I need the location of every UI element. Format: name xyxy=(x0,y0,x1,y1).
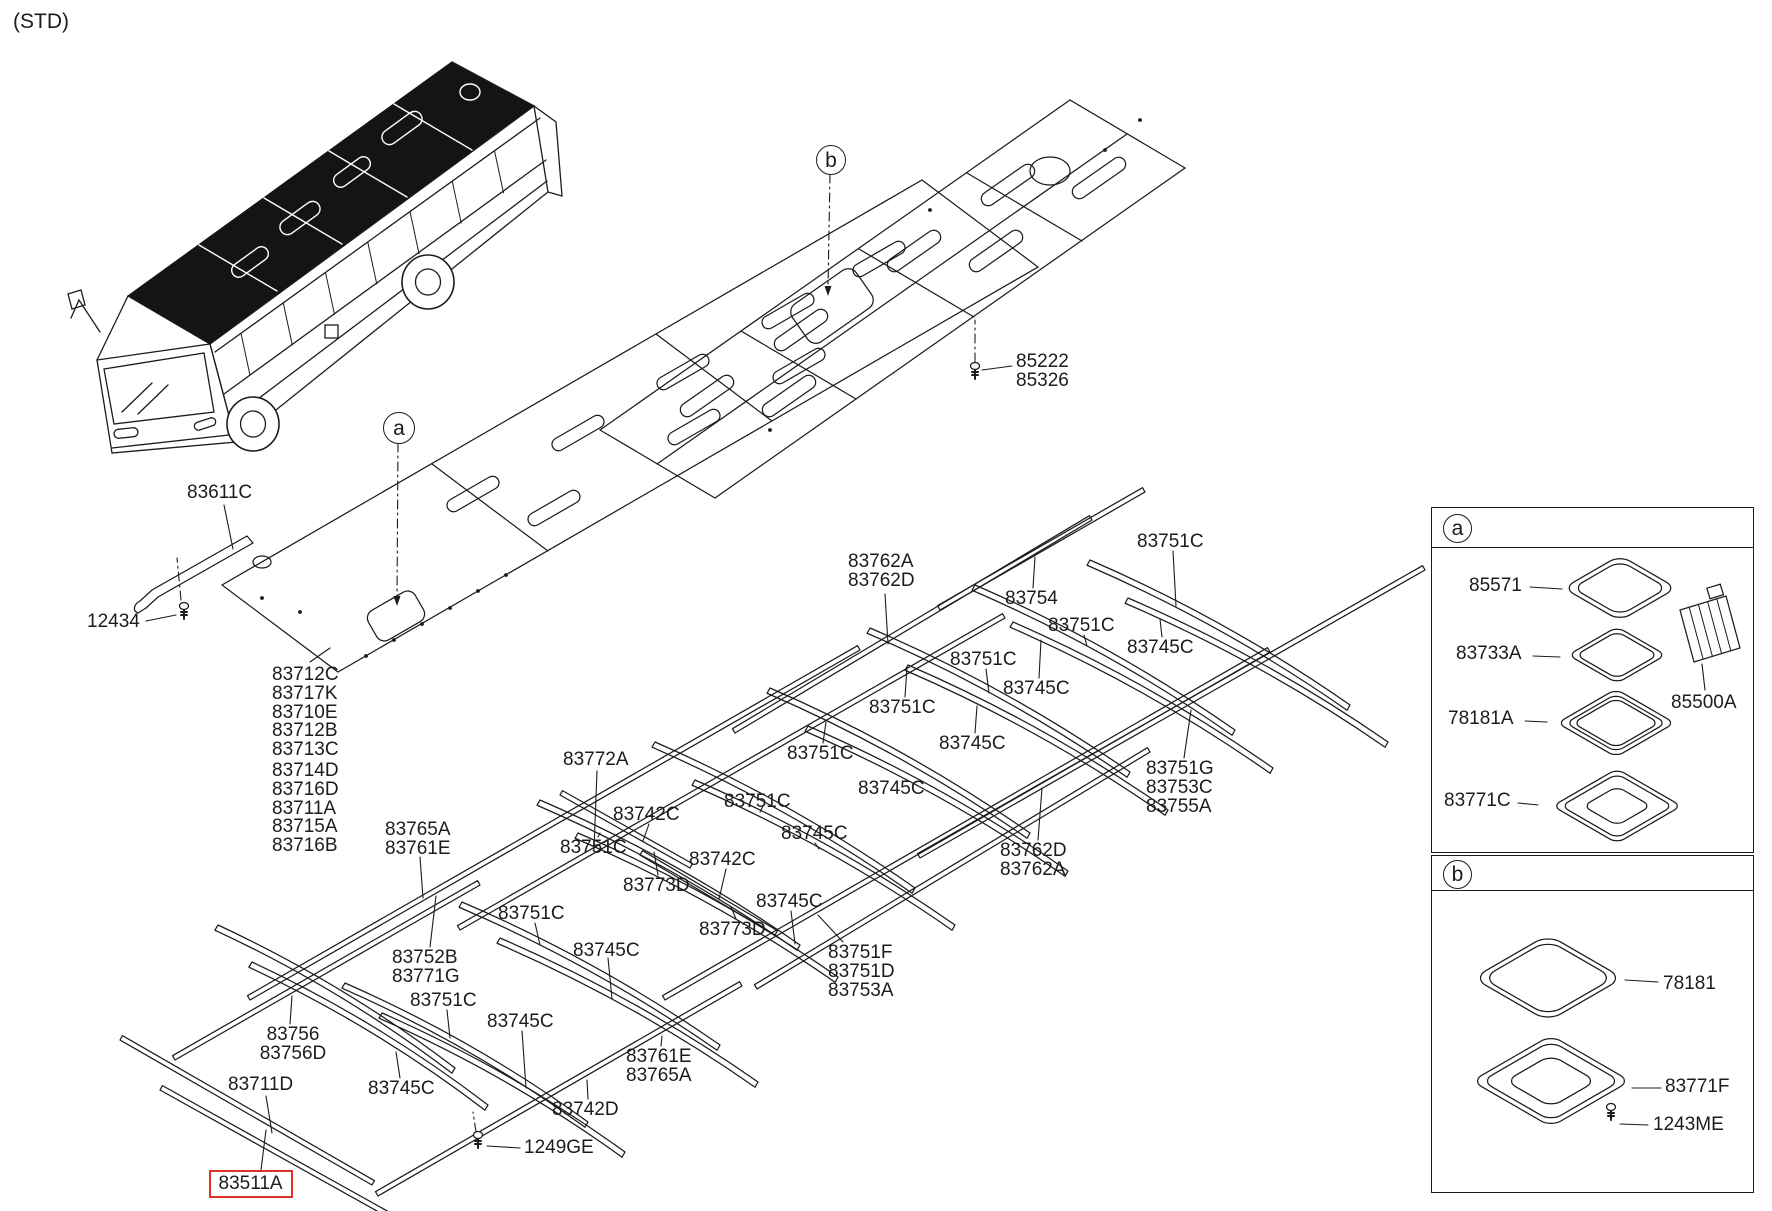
part-label-83745C-9: 83745C xyxy=(858,780,925,799)
part-label-83756-83756D: 83756 83756D xyxy=(256,1026,330,1064)
part-label-83745C-3: 83745C xyxy=(573,942,640,961)
bolt-icon xyxy=(180,603,189,620)
part-label-12434: 12434 xyxy=(87,613,140,632)
part-label-83751C-7: 83751C xyxy=(1048,617,1115,636)
inset-b-parts xyxy=(1472,935,1630,1127)
part-label-83765A-83761E: 83765A 83761E xyxy=(385,821,451,859)
part-label-83762A-83762D: 83762A 83762D xyxy=(848,553,915,591)
part-label-83751F-group: 83751F 83751D 83753A xyxy=(828,944,895,1000)
part-label-83752B-83771G: 83752B 83771G xyxy=(392,949,460,987)
part-label-1249GE: 1249GE xyxy=(524,1139,594,1158)
part-label-83773D-2: 83773D xyxy=(699,921,766,940)
roof-panel-sheet-front xyxy=(222,180,1038,672)
part-label-panel-list-1: 83712C 83717K 83710E 83712B 83713C xyxy=(272,666,339,760)
callout-b-main: b xyxy=(816,145,846,175)
part-label-85222-85326: 85222 85326 xyxy=(1016,353,1069,391)
part-label-83751C-5: 83751C xyxy=(787,745,854,764)
callout-arrows xyxy=(394,286,832,606)
part-label-83762D-83762A: 83762D 83762A xyxy=(1000,842,1067,880)
part-label-1243ME: 1243ME xyxy=(1653,1116,1724,1135)
bolt-icon xyxy=(971,363,980,380)
part-label-83711D: 83711D xyxy=(228,1076,293,1095)
leader-lines xyxy=(146,366,1705,1170)
part-label-83611C: 83611C xyxy=(187,484,252,503)
variant-label: (STD) xyxy=(13,10,69,34)
part-label-85571: 85571 xyxy=(1469,577,1522,596)
part-label-panel-list-2: 83714D 83716D 83711A 83715A 83716B xyxy=(272,762,339,856)
part-label-83742D: 83742D xyxy=(552,1101,619,1120)
part-label-78181A: 78181A xyxy=(1448,710,1514,729)
part-label-83751C-1: 83751C xyxy=(410,992,477,1011)
part-label-83751C-4: 83751C xyxy=(724,793,791,812)
part-label-83742C-1: 83742C xyxy=(613,806,680,825)
part-label-83745C-5: 83745C xyxy=(781,825,848,844)
part-label-83751C-6: 83751C xyxy=(1137,533,1204,552)
part-label-83745C-2: 83745C xyxy=(368,1080,435,1099)
part-label-83742C-2: 83742C xyxy=(689,851,756,870)
part-label-83745C-1: 83745C xyxy=(487,1013,554,1032)
part-label-83772A: 83772A xyxy=(563,751,629,770)
part-label-85500A: 85500A xyxy=(1671,694,1737,713)
part-label-83733A: 83733A xyxy=(1456,645,1522,664)
bus-illustration xyxy=(68,62,562,453)
part-label-83751C-3: 83751C xyxy=(498,905,565,924)
part-label-83751G-group: 83751G 83753C 83755A xyxy=(1146,760,1214,816)
part-label-83751C-9: 83751C xyxy=(869,699,936,718)
part-label-83745C-8: 83745C xyxy=(939,735,1006,754)
part-label-83773D-1: 83773D xyxy=(623,877,690,896)
callout-a-main: a xyxy=(383,412,415,444)
part-label-78181: 78181 xyxy=(1663,975,1716,994)
part-label-83745C-4: 83745C xyxy=(756,893,823,912)
bolt-icon xyxy=(1607,1104,1616,1121)
part-label-83754: 83754 xyxy=(1005,590,1058,609)
part-label-83751C-2: 83751C xyxy=(560,839,627,858)
part-label-83761E-83765A: 83761E 83765A xyxy=(626,1048,692,1086)
part-label-83511A[interactable]: 83511A xyxy=(209,1170,293,1198)
part-label-83771F: 83771F xyxy=(1665,1078,1729,1097)
part-label-83751C-8: 83751C xyxy=(950,651,1017,670)
part-label-83771C: 83771C xyxy=(1444,792,1511,811)
drip-rail-83611C xyxy=(134,536,253,613)
roof-parts-diagram: (STD) a b a b 83611C1243485222 853268371… xyxy=(0,0,1772,1211)
part-label-83745C-6: 83745C xyxy=(1127,639,1194,658)
part-label-83745C-7: 83745C xyxy=(1003,680,1070,699)
